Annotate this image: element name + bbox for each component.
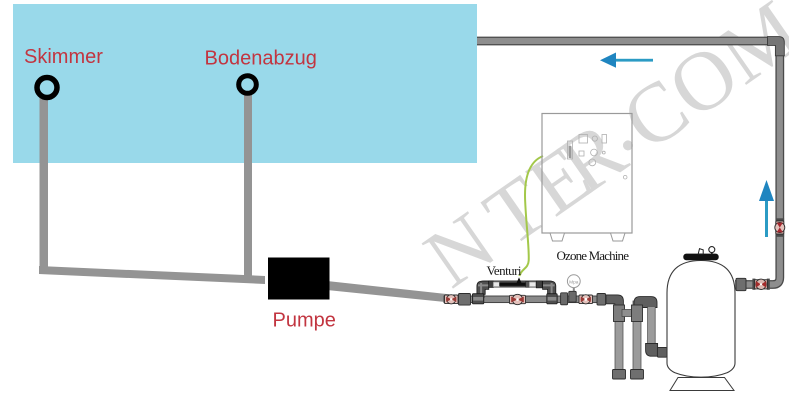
svg-text:Venturi: Venturi (487, 263, 522, 278)
svg-text:Bodenabzug: Bodenabzug (205, 48, 317, 70)
svg-text:Ozone Machine: Ozone Machine (557, 248, 630, 263)
svg-text:Pumpe: Pumpe (273, 310, 336, 332)
svg-text:Skimmer: Skimmer (24, 46, 103, 68)
svg-text:Mpa: Mpa (569, 279, 579, 285)
